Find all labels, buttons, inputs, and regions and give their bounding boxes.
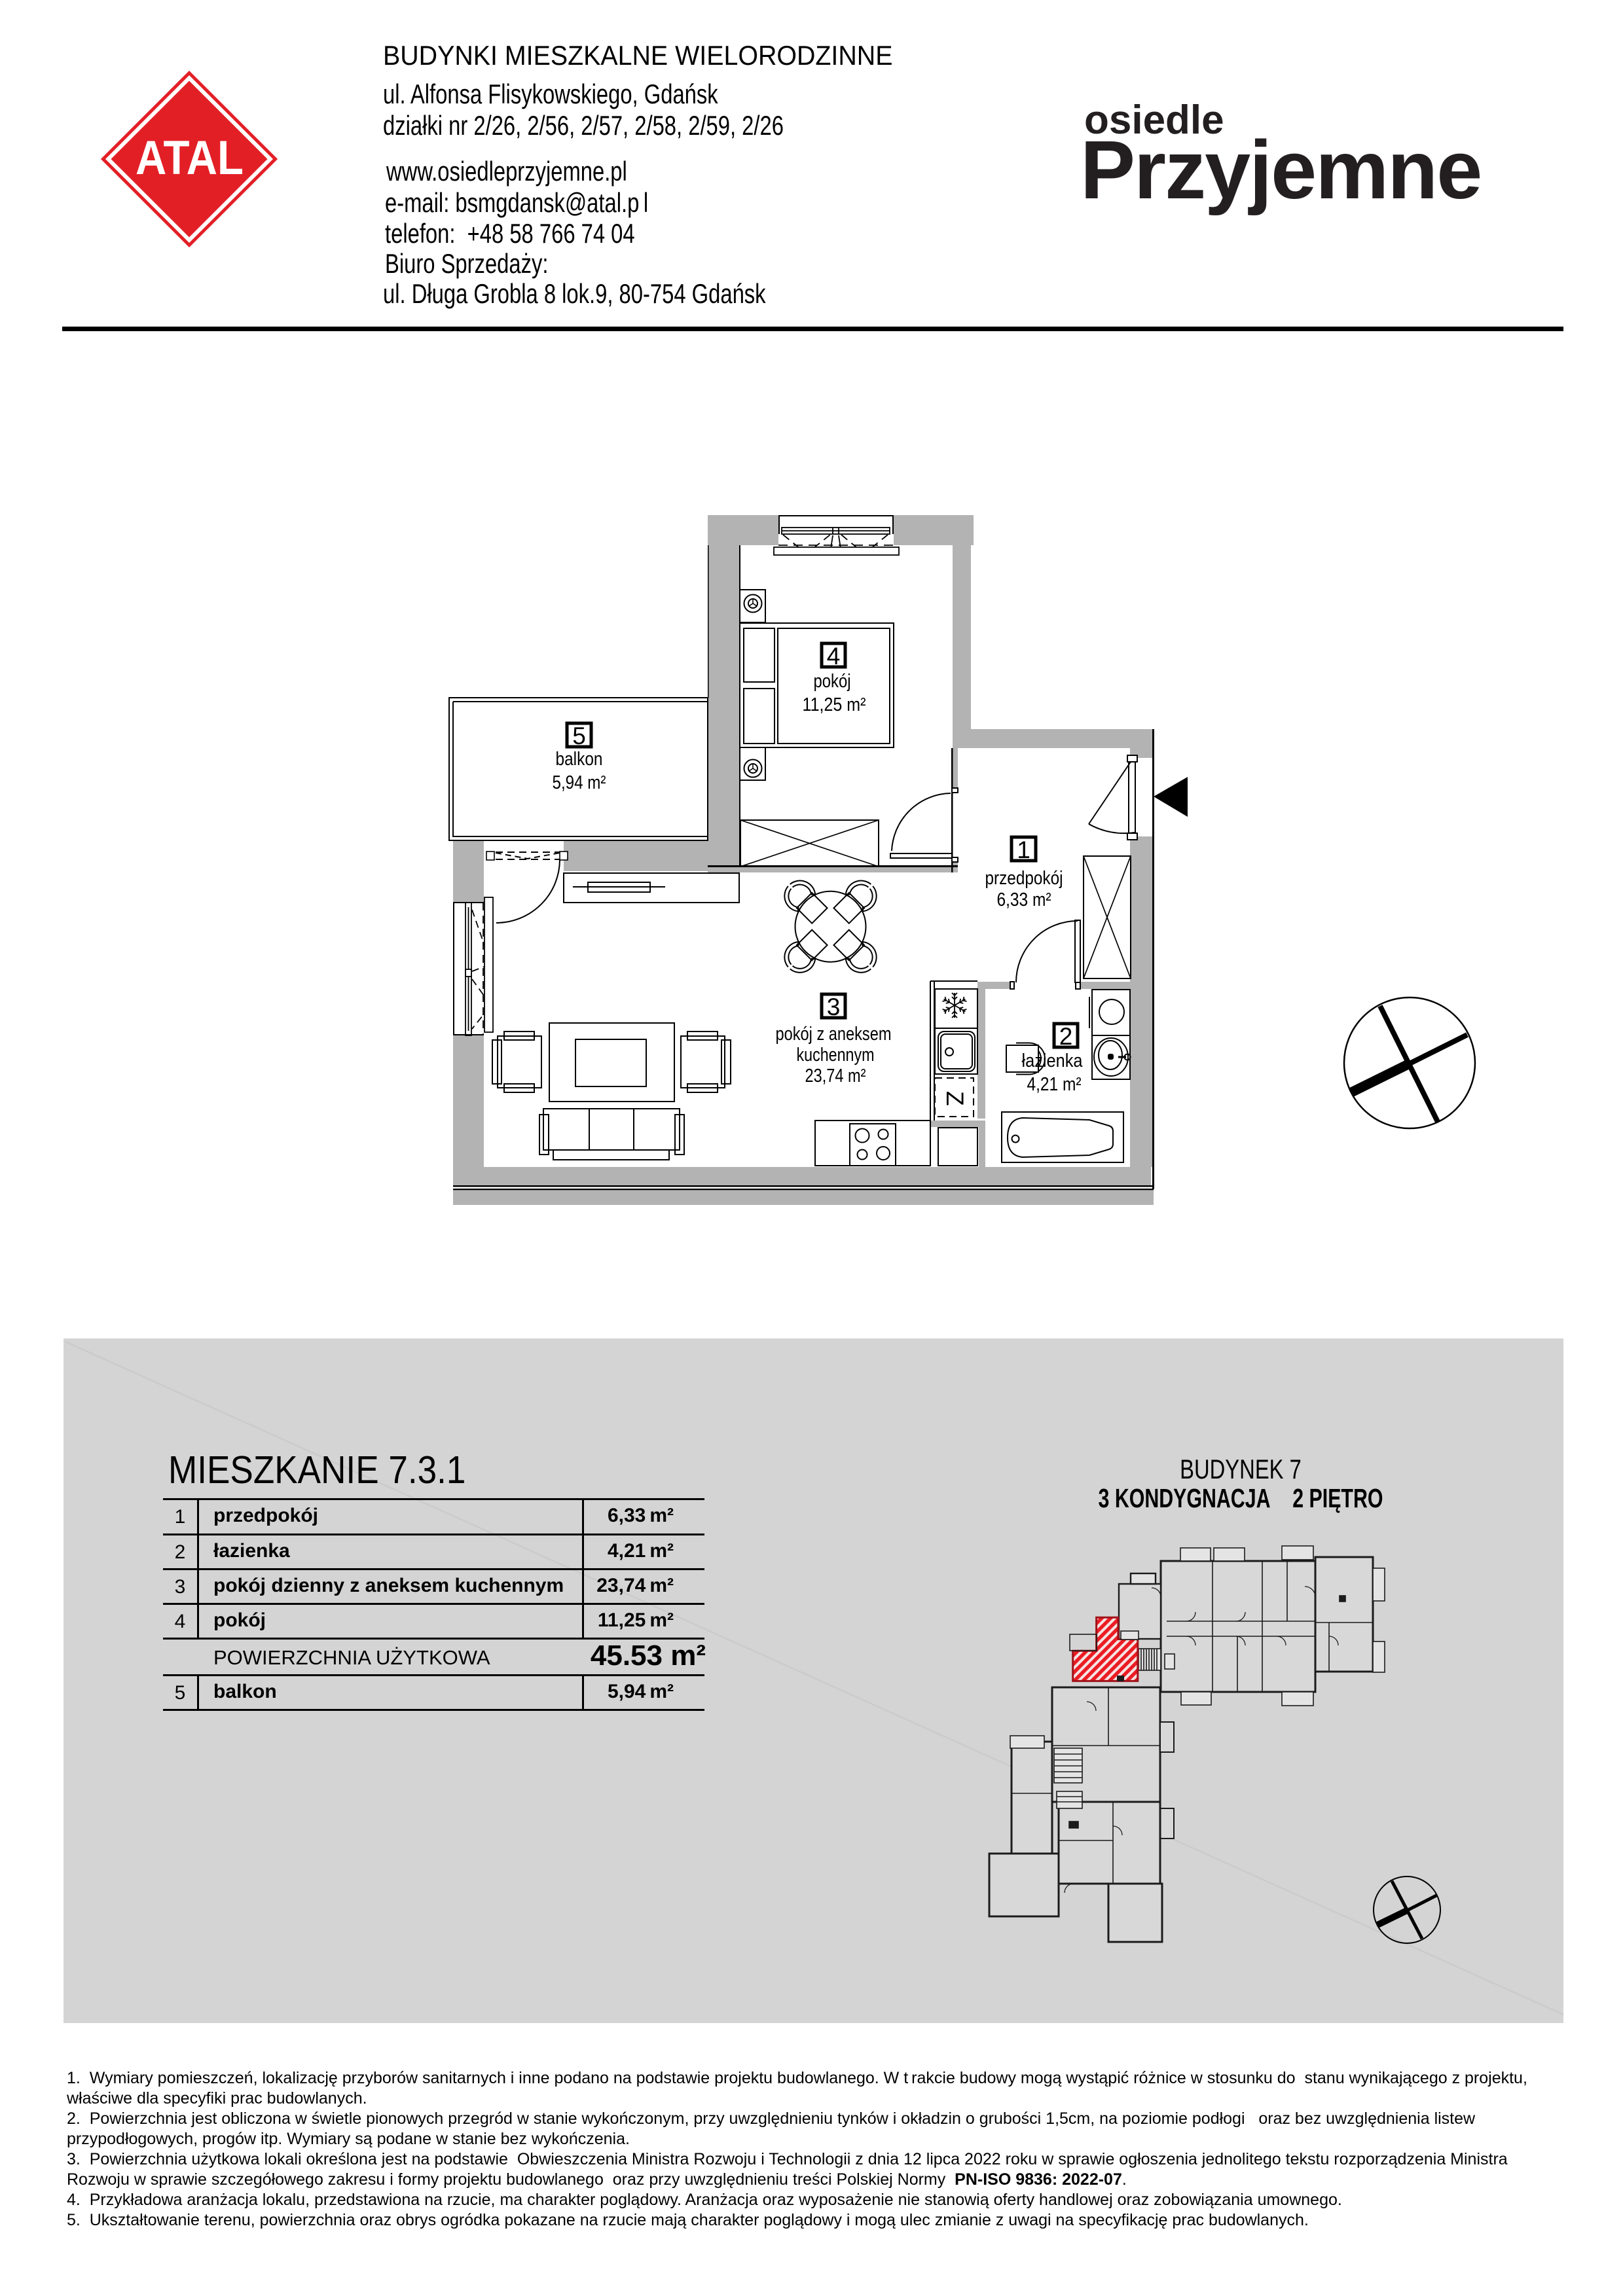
svg-text:kuchennym: kuchennym	[797, 1045, 875, 1066]
svg-text:balkon: balkon	[556, 749, 603, 770]
svg-text:łazienka: łazienka	[1022, 1050, 1084, 1071]
svg-text:23,74 m²: 23,74 m²	[805, 1066, 866, 1086]
svg-text:4,21 m²: 4,21 m²	[1027, 1074, 1082, 1095]
svg-text:2: 2	[1059, 1023, 1073, 1050]
svg-text:1: 1	[1017, 836, 1030, 863]
svg-text:przedpokój: przedpokój	[985, 868, 1063, 889]
svg-text:5: 5	[572, 723, 586, 749]
svg-text:6,33 m²: 6,33 m²	[997, 889, 1051, 910]
svg-text:4: 4	[827, 643, 841, 670]
svg-text:pokój z aneksem: pokój z aneksem	[776, 1024, 892, 1045]
svg-text:5,94 m²: 5,94 m²	[553, 772, 606, 793]
svg-text:ATAL: ATAL	[136, 132, 244, 185]
svg-text:Z: Z	[941, 1091, 968, 1106]
svg-text:3: 3	[827, 994, 841, 1020]
svg-text:11,25 m²: 11,25 m²	[803, 694, 866, 715]
svg-text:pokój: pokój	[814, 671, 851, 692]
